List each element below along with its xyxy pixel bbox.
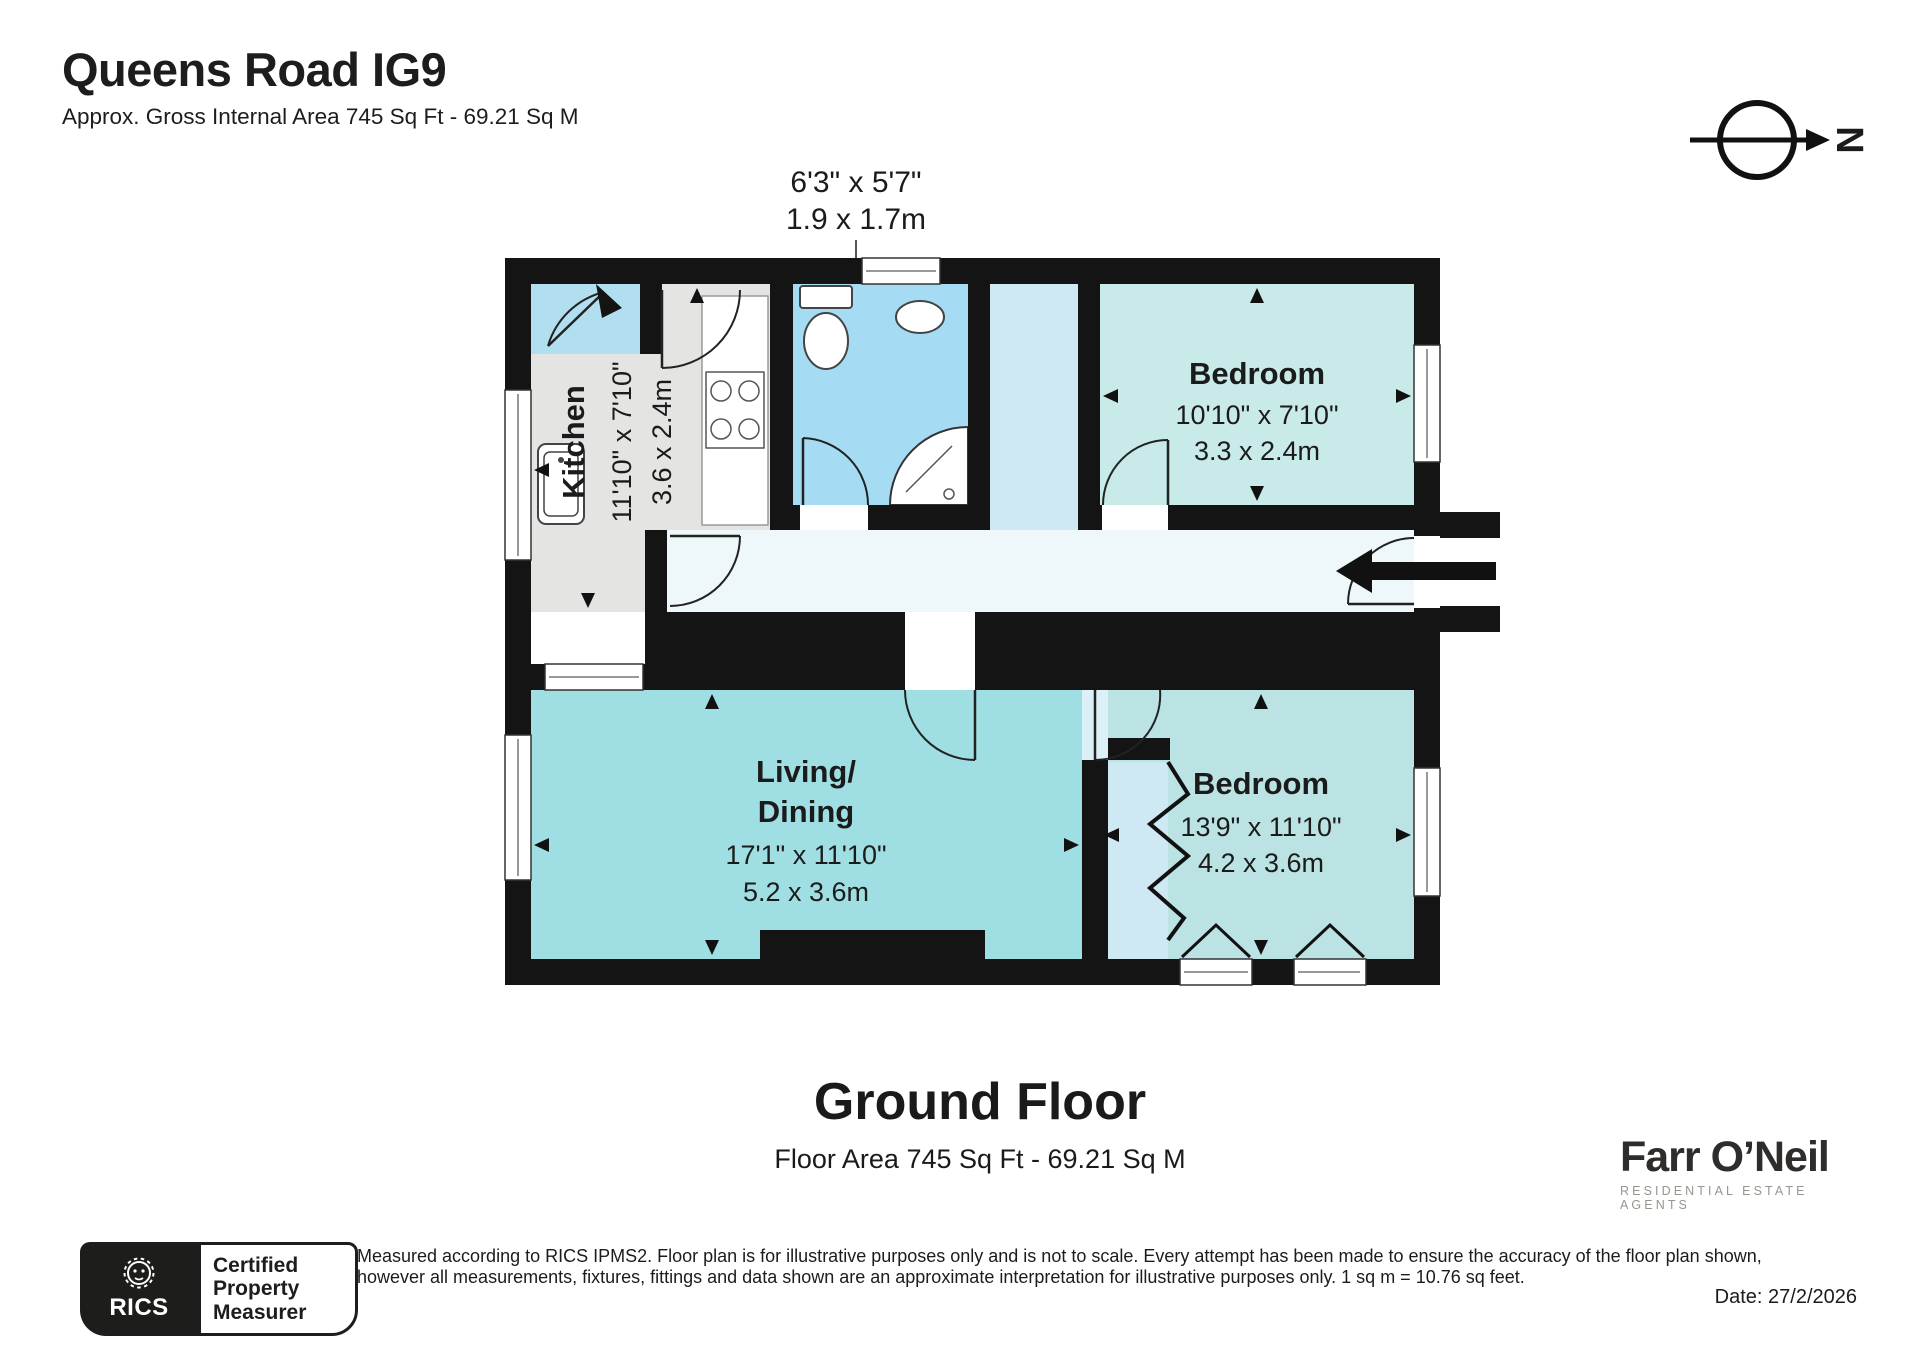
bedroom-bottom-window bbox=[1414, 768, 1440, 896]
wall-bedroom-top-left bbox=[1078, 284, 1100, 505]
inner-hall-opening bbox=[990, 505, 1078, 530]
wardrobe-floor bbox=[1108, 762, 1168, 959]
toilet-icon bbox=[800, 286, 852, 369]
living-imperial: 17'1" x 11'10" bbox=[725, 840, 886, 870]
rics-caption-line1: Certified bbox=[213, 1254, 355, 1278]
living-door-opening bbox=[905, 612, 975, 690]
inner-hall-strip-floor bbox=[990, 284, 1078, 530]
rics-brand: RICS bbox=[109, 1294, 168, 1322]
wall-porch-top bbox=[1440, 512, 1500, 538]
kitchen-label: Kitchen bbox=[556, 385, 591, 499]
rics-badge: RICS Certified Property Measurer bbox=[80, 1242, 358, 1336]
kitchen-metric: 3.6 x 2.4m bbox=[647, 379, 677, 505]
floor-title: Ground Floor bbox=[430, 1072, 1530, 1132]
rics-caption-line3: Measurer bbox=[213, 1301, 355, 1325]
wall-hall-bottom bbox=[667, 612, 1414, 690]
compass-north-label: N bbox=[1828, 126, 1870, 153]
rics-lion-icon bbox=[117, 1256, 161, 1292]
wall-lobby bbox=[640, 284, 662, 354]
rics-logo: RICS bbox=[80, 1242, 198, 1336]
bedroom-top-floor bbox=[1100, 284, 1414, 505]
bay-window-left bbox=[1180, 959, 1252, 985]
agency-logo: Farr O’Neil RESIDENTIAL ESTATE AGENTS bbox=[1620, 1136, 1865, 1212]
agency-name: Farr O’Neil bbox=[1620, 1136, 1865, 1179]
bedroom-top-window bbox=[1414, 345, 1440, 462]
entry-lobby-floor bbox=[531, 284, 640, 354]
living-internal-window bbox=[545, 664, 643, 690]
rics-caption: Certified Property Measurer bbox=[198, 1242, 358, 1336]
bathroom-window bbox=[862, 258, 940, 284]
kitchen-window bbox=[505, 390, 531, 560]
bedroom-top-imperial: 10'10" x 7'10" bbox=[1175, 400, 1338, 430]
hallway-floor bbox=[667, 530, 1414, 612]
bathroom-callout-metric: 1.9 x 1.7m bbox=[786, 203, 926, 236]
rics-caption-line2: Property bbox=[213, 1277, 355, 1301]
bedroom-top-door-opening bbox=[1102, 505, 1168, 530]
bedroom-bottom-label: Bedroom bbox=[1193, 766, 1329, 801]
bathroom-door-opening bbox=[800, 505, 868, 530]
basin-icon bbox=[896, 301, 944, 333]
living-window bbox=[505, 735, 531, 880]
living-label-line1: Living/ bbox=[756, 754, 856, 789]
agency-tagline: RESIDENTIAL ESTATE AGENTS bbox=[1620, 1184, 1865, 1212]
disclaimer: Measured according to RICS IPMS2. Floor … bbox=[357, 1246, 1872, 1288]
bedroom-top-label: Bedroom bbox=[1189, 356, 1325, 391]
compass-icon: N bbox=[1690, 103, 1870, 177]
bedroom-bottom-metric: 4.2 x 3.6m bbox=[1198, 848, 1324, 878]
wall-porch-bottom bbox=[1440, 606, 1500, 632]
floor-summary: Ground Floor Floor Area 745 Sq Ft - 69.2… bbox=[430, 1072, 1530, 1175]
chimney-breast bbox=[760, 930, 985, 959]
bedroom-top-metric: 3.3 x 2.4m bbox=[1194, 436, 1320, 466]
living-label-line2: Dining bbox=[758, 794, 854, 829]
bay-window-right bbox=[1294, 959, 1366, 985]
date-label: Date: 27/2/2026 bbox=[1715, 1286, 1857, 1309]
wall-top bbox=[505, 258, 1440, 284]
living-metric: 5.2 x 3.6m bbox=[743, 877, 869, 907]
wall-kitchen-bathroom bbox=[770, 284, 793, 505]
disclaimer-line2: however all measurements, fixtures, fitt… bbox=[357, 1267, 1872, 1288]
kitchen-imperial: 11'10" x 7'10" bbox=[607, 361, 637, 522]
wall-bathroom-right bbox=[968, 284, 990, 505]
bedroom-bottom-imperial: 13'9" x 11'10" bbox=[1180, 812, 1341, 842]
hob-icon bbox=[706, 372, 764, 448]
bathroom-callout-imperial: 6'3" x 5'7" bbox=[790, 166, 921, 199]
floor-subtitle: Floor Area 745 Sq Ft - 69.21 Sq M bbox=[430, 1144, 1530, 1175]
disclaimer-line1: Measured according to RICS IPMS2. Floor … bbox=[357, 1246, 1872, 1267]
